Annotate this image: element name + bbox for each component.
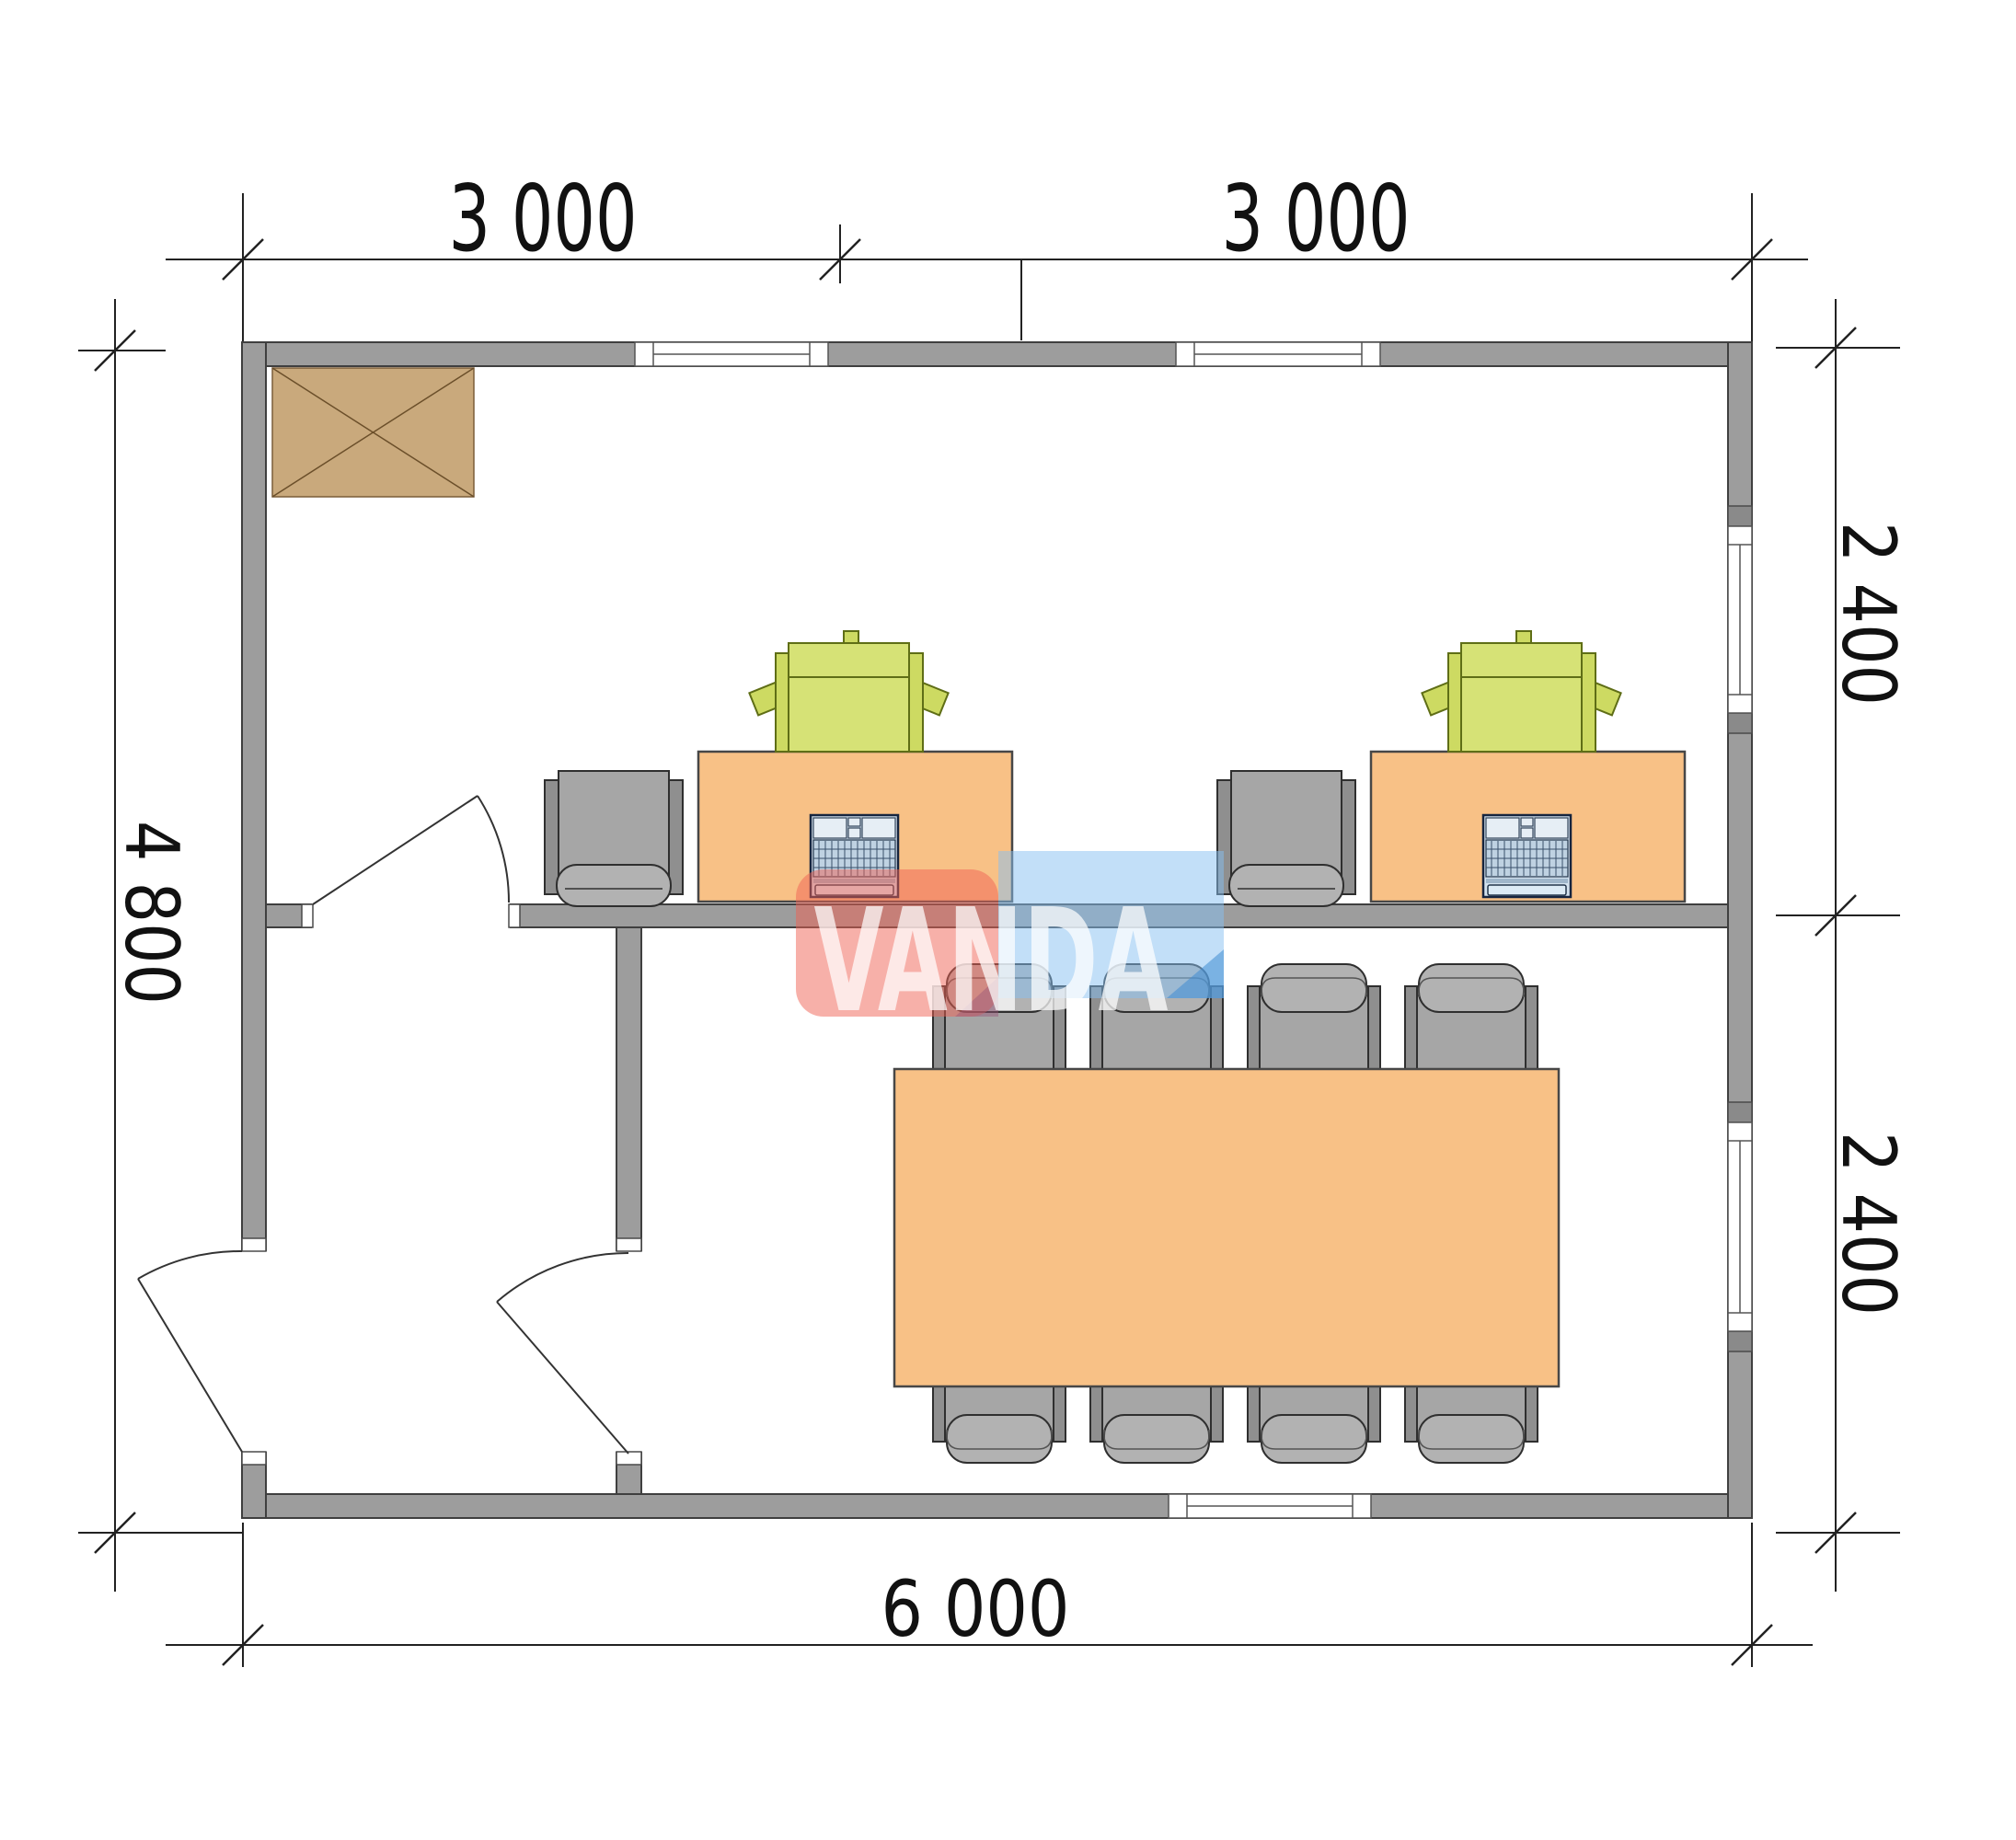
watermark-logo-text: VANDA bbox=[814, 878, 1169, 1044]
opening-office-door bbox=[312, 901, 510, 931]
meeting-table bbox=[894, 1069, 1559, 1386]
door-jamb bbox=[242, 1452, 266, 1465]
door-jamb bbox=[242, 1238, 266, 1251]
dim-label-top-right: 3 000 bbox=[1222, 165, 1411, 272]
dim-label-right-bottom: 2 400 bbox=[1826, 1132, 1911, 1316]
laptop-symbol-2 bbox=[1483, 815, 1571, 897]
window-jamb bbox=[1728, 713, 1752, 733]
dim-label-top-left: 3 000 bbox=[449, 165, 638, 272]
office-chair-1 bbox=[545, 771, 683, 906]
vanda-watermark: VANDA bbox=[796, 851, 1224, 1044]
door-jamb bbox=[509, 904, 520, 927]
window-top-1 bbox=[635, 342, 828, 366]
window-top-2 bbox=[1176, 342, 1380, 366]
exterior-wall-bottom bbox=[242, 1494, 1752, 1518]
storage-box bbox=[272, 368, 474, 497]
door-jamb bbox=[616, 1238, 641, 1251]
window-jamb bbox=[1728, 1331, 1752, 1351]
opening-vestibule-door bbox=[613, 1251, 645, 1452]
window-jamb bbox=[1728, 1102, 1752, 1122]
floor-plan: 3 000 3 000 4 800 2 400 2 400 6 000 bbox=[0, 0, 2016, 1840]
office-chair-2 bbox=[1217, 771, 1355, 906]
exterior-wall-top bbox=[242, 342, 1752, 366]
dim-label-right-top: 2 400 bbox=[1826, 522, 1911, 706]
door-jamb bbox=[616, 1452, 641, 1465]
door-jamb bbox=[302, 904, 313, 927]
dim-label-bottom: 6 000 bbox=[881, 1564, 1070, 1654]
window-right-2 bbox=[1728, 1122, 1752, 1331]
opening-entrance-door bbox=[238, 1251, 270, 1452]
window-right-1 bbox=[1728, 526, 1752, 713]
window-jamb bbox=[1728, 506, 1752, 526]
window-bottom bbox=[1169, 1494, 1371, 1518]
dim-label-left: 4 800 bbox=[109, 821, 194, 1005]
